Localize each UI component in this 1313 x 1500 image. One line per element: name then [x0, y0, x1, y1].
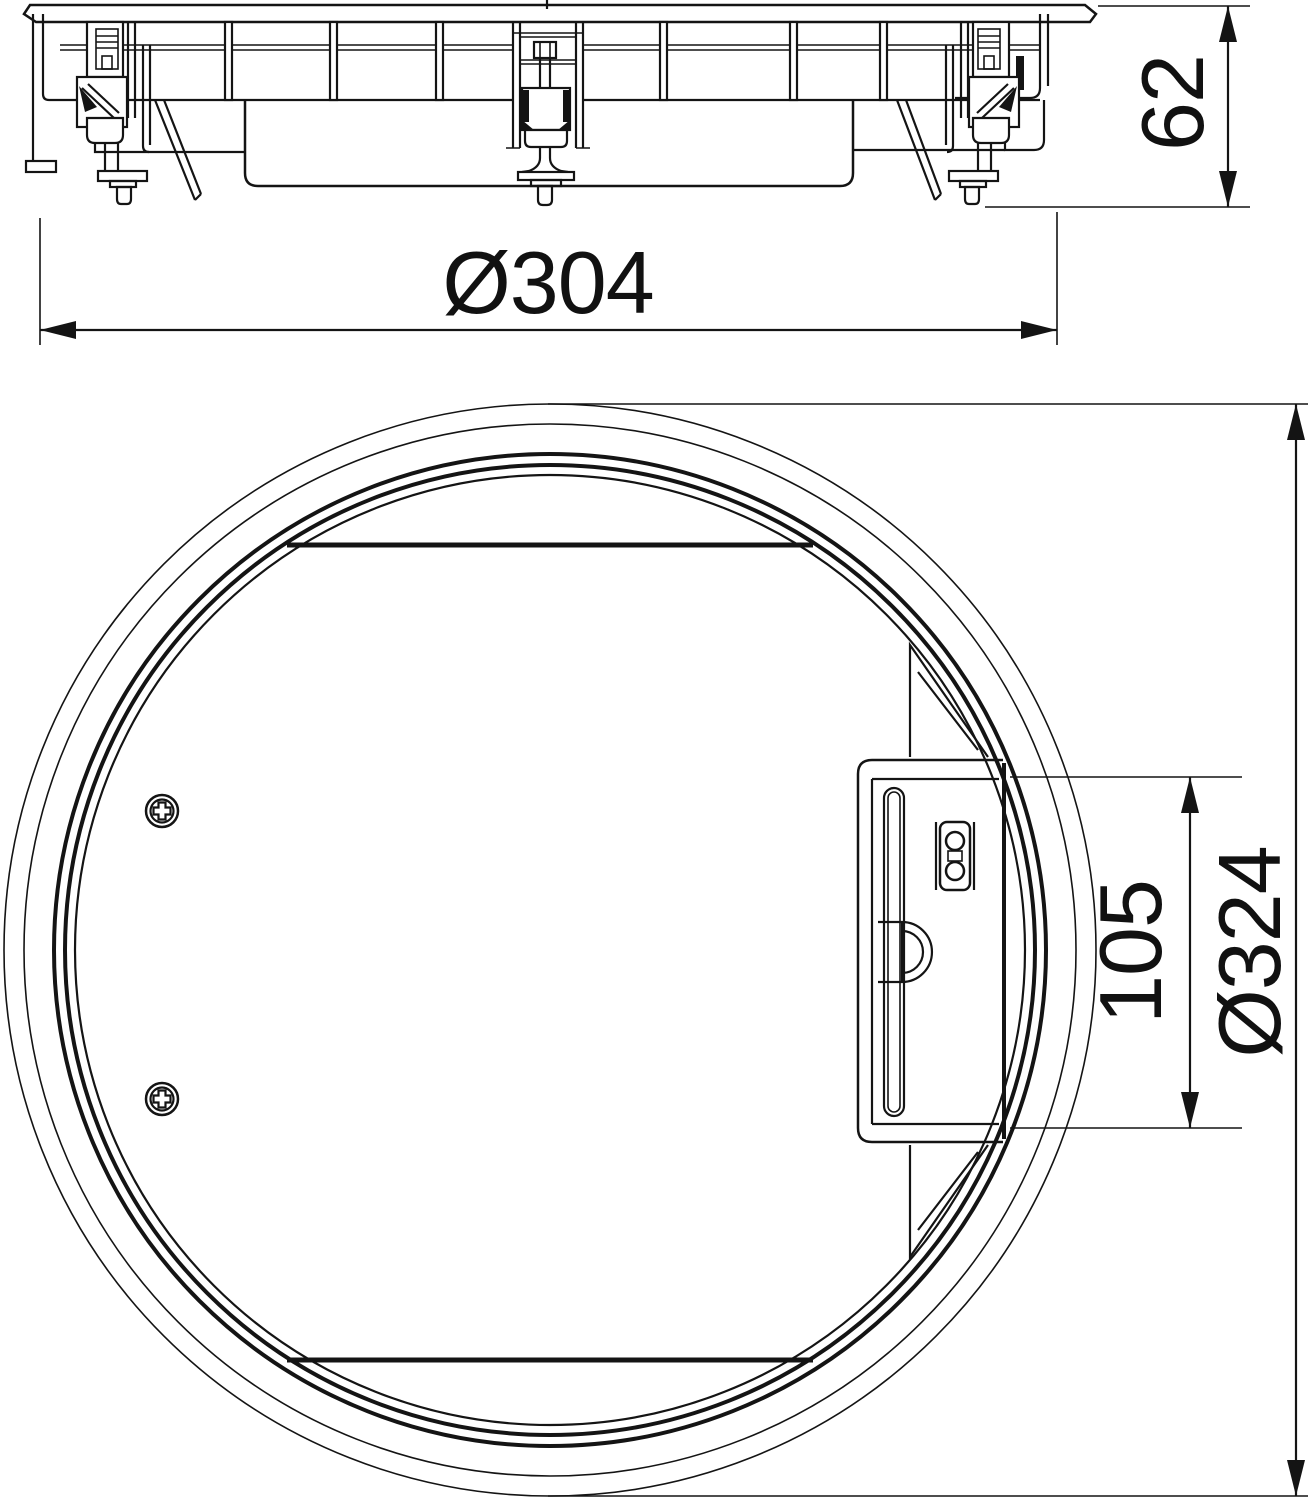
arrowhead-icon	[40, 321, 76, 339]
support-fin-left	[155, 100, 201, 200]
dimension-d304: Ø304	[40, 212, 1057, 345]
latch-frame	[858, 760, 1003, 1142]
screw-icon	[146, 1083, 178, 1115]
dim-text-l105: 105	[1081, 880, 1180, 1024]
side-view: Ø304 62	[24, 0, 1250, 345]
arrowhead-icon	[1287, 404, 1305, 440]
extension-lines	[548, 404, 1308, 1496]
drawing-sheet: Ø304 62	[0, 0, 1313, 1500]
gusset-top	[910, 645, 988, 757]
arrowhead-icon	[1219, 171, 1237, 207]
lid-profile	[24, 0, 1096, 22]
arrowhead-icon	[1219, 6, 1237, 42]
dimension-h62: 62	[985, 6, 1250, 207]
arrowhead-icon	[1021, 321, 1057, 339]
arrowhead-icon	[1287, 1460, 1305, 1496]
dim-text-d324: Ø324	[1200, 846, 1299, 1057]
dimension-d324: Ø324	[548, 404, 1308, 1496]
arrowhead-icon	[1181, 777, 1199, 813]
clamp-screw-head	[534, 42, 556, 58]
lock-icon	[936, 822, 974, 890]
dim-text-d304: Ø304	[442, 233, 653, 332]
technical-drawing: Ø304 62	[0, 0, 1313, 1500]
cover-lid	[287, 545, 813, 1360]
latch-assembly	[858, 645, 1004, 1257]
clamp-screw-shaft	[540, 58, 550, 88]
lid-edge-circle	[75, 475, 1025, 1425]
fixing-clamp-center	[506, 22, 590, 205]
screw-icon	[146, 795, 178, 827]
dim-text-h62: 62	[1123, 55, 1222, 151]
cover-ring	[54, 454, 1046, 1446]
plan-view: 105 Ø324	[4, 404, 1308, 1496]
arrowhead-icon	[1181, 1092, 1199, 1128]
